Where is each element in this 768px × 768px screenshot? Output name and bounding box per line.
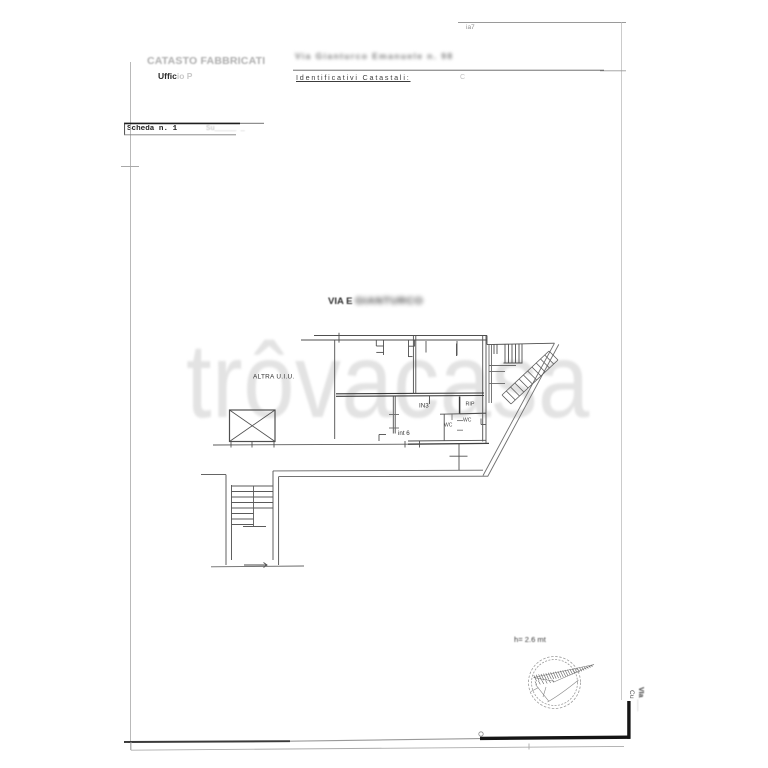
svg-text:WC: WC (444, 423, 453, 429)
svg-text:ALTRA U.I.U.: ALTRA U.I.U. (253, 374, 294, 381)
svg-text:RIP: RIP (466, 402, 475, 408)
svg-text:IN3: IN3 (419, 403, 429, 410)
svg-text:int 6: int 6 (398, 430, 410, 437)
svg-text:ia7: ia7 (466, 24, 475, 31)
svg-text:WC: WC (463, 418, 472, 424)
